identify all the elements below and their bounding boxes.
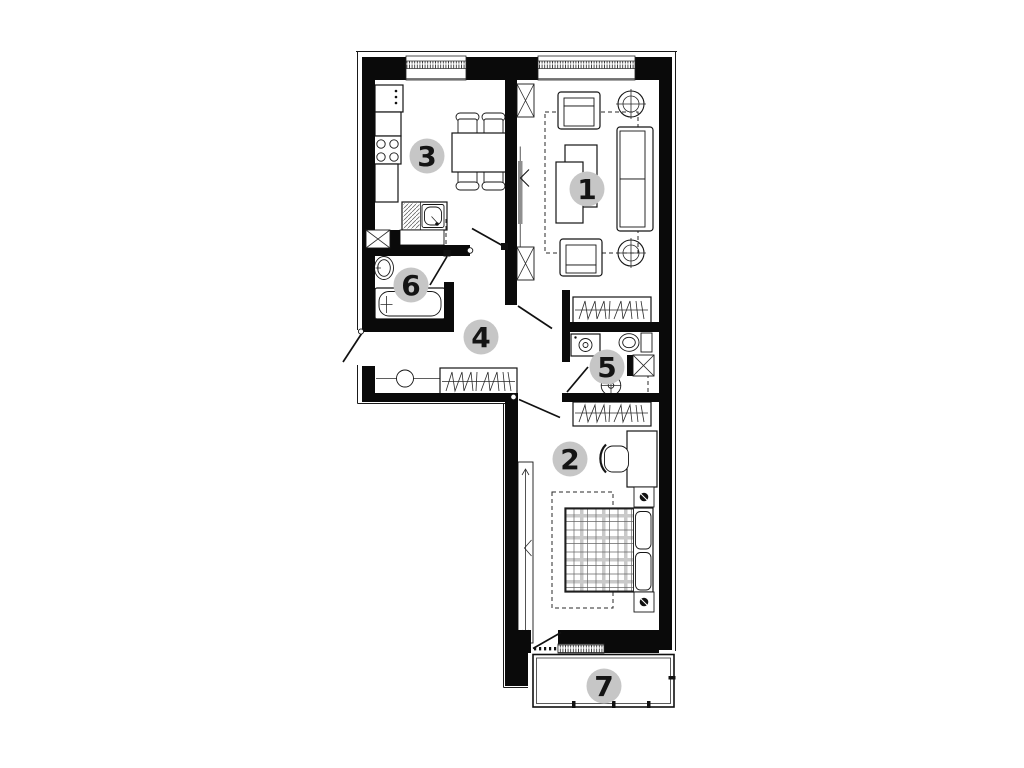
fridge-handle-dot (395, 90, 398, 93)
bathroom-door-leaf (430, 257, 447, 286)
washbasin (375, 257, 394, 280)
desk (627, 431, 657, 487)
wall-right (659, 57, 672, 650)
floor-plan-page: 1 2 3 4 5 6 7 (0, 0, 1024, 768)
wc-door-leaf (567, 367, 588, 392)
svg-text:1: 1 (577, 173, 596, 206)
svg-text:4: 4 (471, 321, 490, 354)
glazing-mullion (669, 676, 676, 680)
door-stop (467, 248, 473, 254)
kitchen-cabinet (400, 230, 444, 245)
sliding-wardrobe (518, 462, 533, 643)
kitchen-door-leaf (472, 229, 505, 248)
ceiling-light (616, 238, 646, 268)
armchair (560, 239, 602, 276)
toilet (619, 333, 652, 352)
balcony-door-threshold (534, 647, 556, 650)
bedroom-furniture (518, 431, 657, 643)
glazing-mullion (572, 701, 576, 708)
living-door-leaf (518, 306, 552, 329)
room-label-3: 3 (410, 139, 445, 174)
vent-shaft (366, 230, 390, 248)
column-shaft (517, 84, 534, 117)
bedroom-door-leaf (519, 400, 560, 418)
closet-bedroom-north (573, 402, 651, 426)
hall-stool (397, 370, 414, 387)
svg-text:2: 2 (560, 443, 579, 476)
wall-left (362, 57, 375, 332)
nightstand (634, 487, 654, 507)
window-bedroom (558, 644, 604, 653)
svg-text:3: 3 (417, 140, 436, 173)
hall-wardrobe (440, 368, 517, 395)
fridge (375, 85, 403, 112)
kitchen-counter (375, 164, 398, 202)
pillow (636, 512, 652, 550)
room-label-2: 2 (553, 442, 588, 477)
window-kitchen (406, 56, 466, 80)
vent-shaft (633, 355, 654, 376)
room-label-6: 6 (394, 268, 429, 303)
door-hinge (501, 243, 508, 250)
door-hinge (358, 329, 363, 334)
desk-chair (600, 445, 628, 473)
fridge-handle-dot (395, 96, 398, 99)
ceiling-light (616, 89, 646, 119)
sliding-door-panel (518, 161, 523, 224)
sofa (617, 127, 653, 231)
bed-blanket (566, 509, 634, 591)
room-label-5: 5 (590, 350, 625, 385)
door-hinge (511, 394, 517, 400)
room-label-1: 1 (570, 172, 605, 207)
balcony-door-leaf (533, 633, 561, 649)
svg-text:6: 6 (401, 269, 420, 302)
window-living (538, 56, 635, 80)
kitchen-sink (402, 202, 447, 230)
hallway-fixtures (376, 368, 517, 395)
pillow (636, 553, 652, 591)
entrance-door-leaf (343, 333, 362, 362)
door-hinge (444, 250, 451, 257)
sliding-door-living (518, 147, 529, 247)
fridge-handle-dot (395, 102, 398, 105)
bed (565, 508, 653, 592)
armchair (558, 92, 600, 129)
nightstand (634, 592, 654, 612)
glazing-mullion (647, 701, 651, 708)
room-label-7: 7 (587, 669, 622, 704)
svg-text:5: 5 (597, 351, 616, 384)
dining-table (452, 133, 506, 172)
floor-plan-drawing: 1 2 3 4 5 6 7 (0, 0, 1024, 768)
washing-machine (571, 334, 600, 356)
closet-living-south (573, 297, 651, 323)
room-label-4: 4 (464, 320, 499, 355)
column-shaft (517, 247, 534, 280)
kitchen-counter (375, 112, 401, 136)
svg-text:7: 7 (594, 670, 613, 703)
wall-middle (505, 80, 517, 305)
stove (374, 136, 401, 164)
